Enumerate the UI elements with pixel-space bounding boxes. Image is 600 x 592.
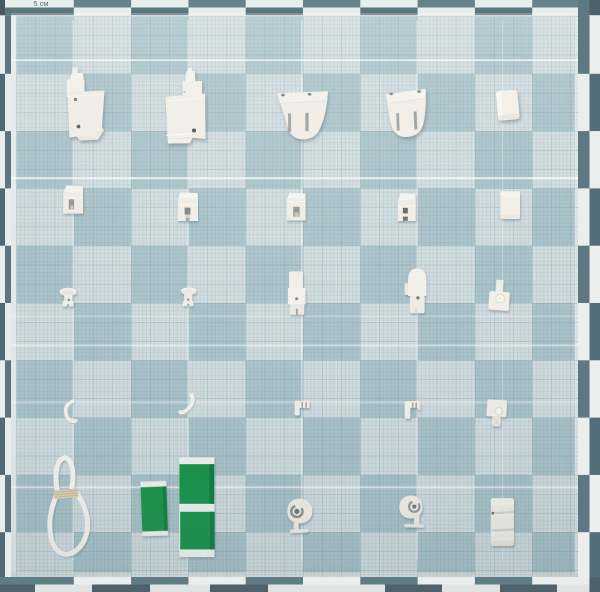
svg-text:5 см: 5 см bbox=[33, 0, 48, 8]
